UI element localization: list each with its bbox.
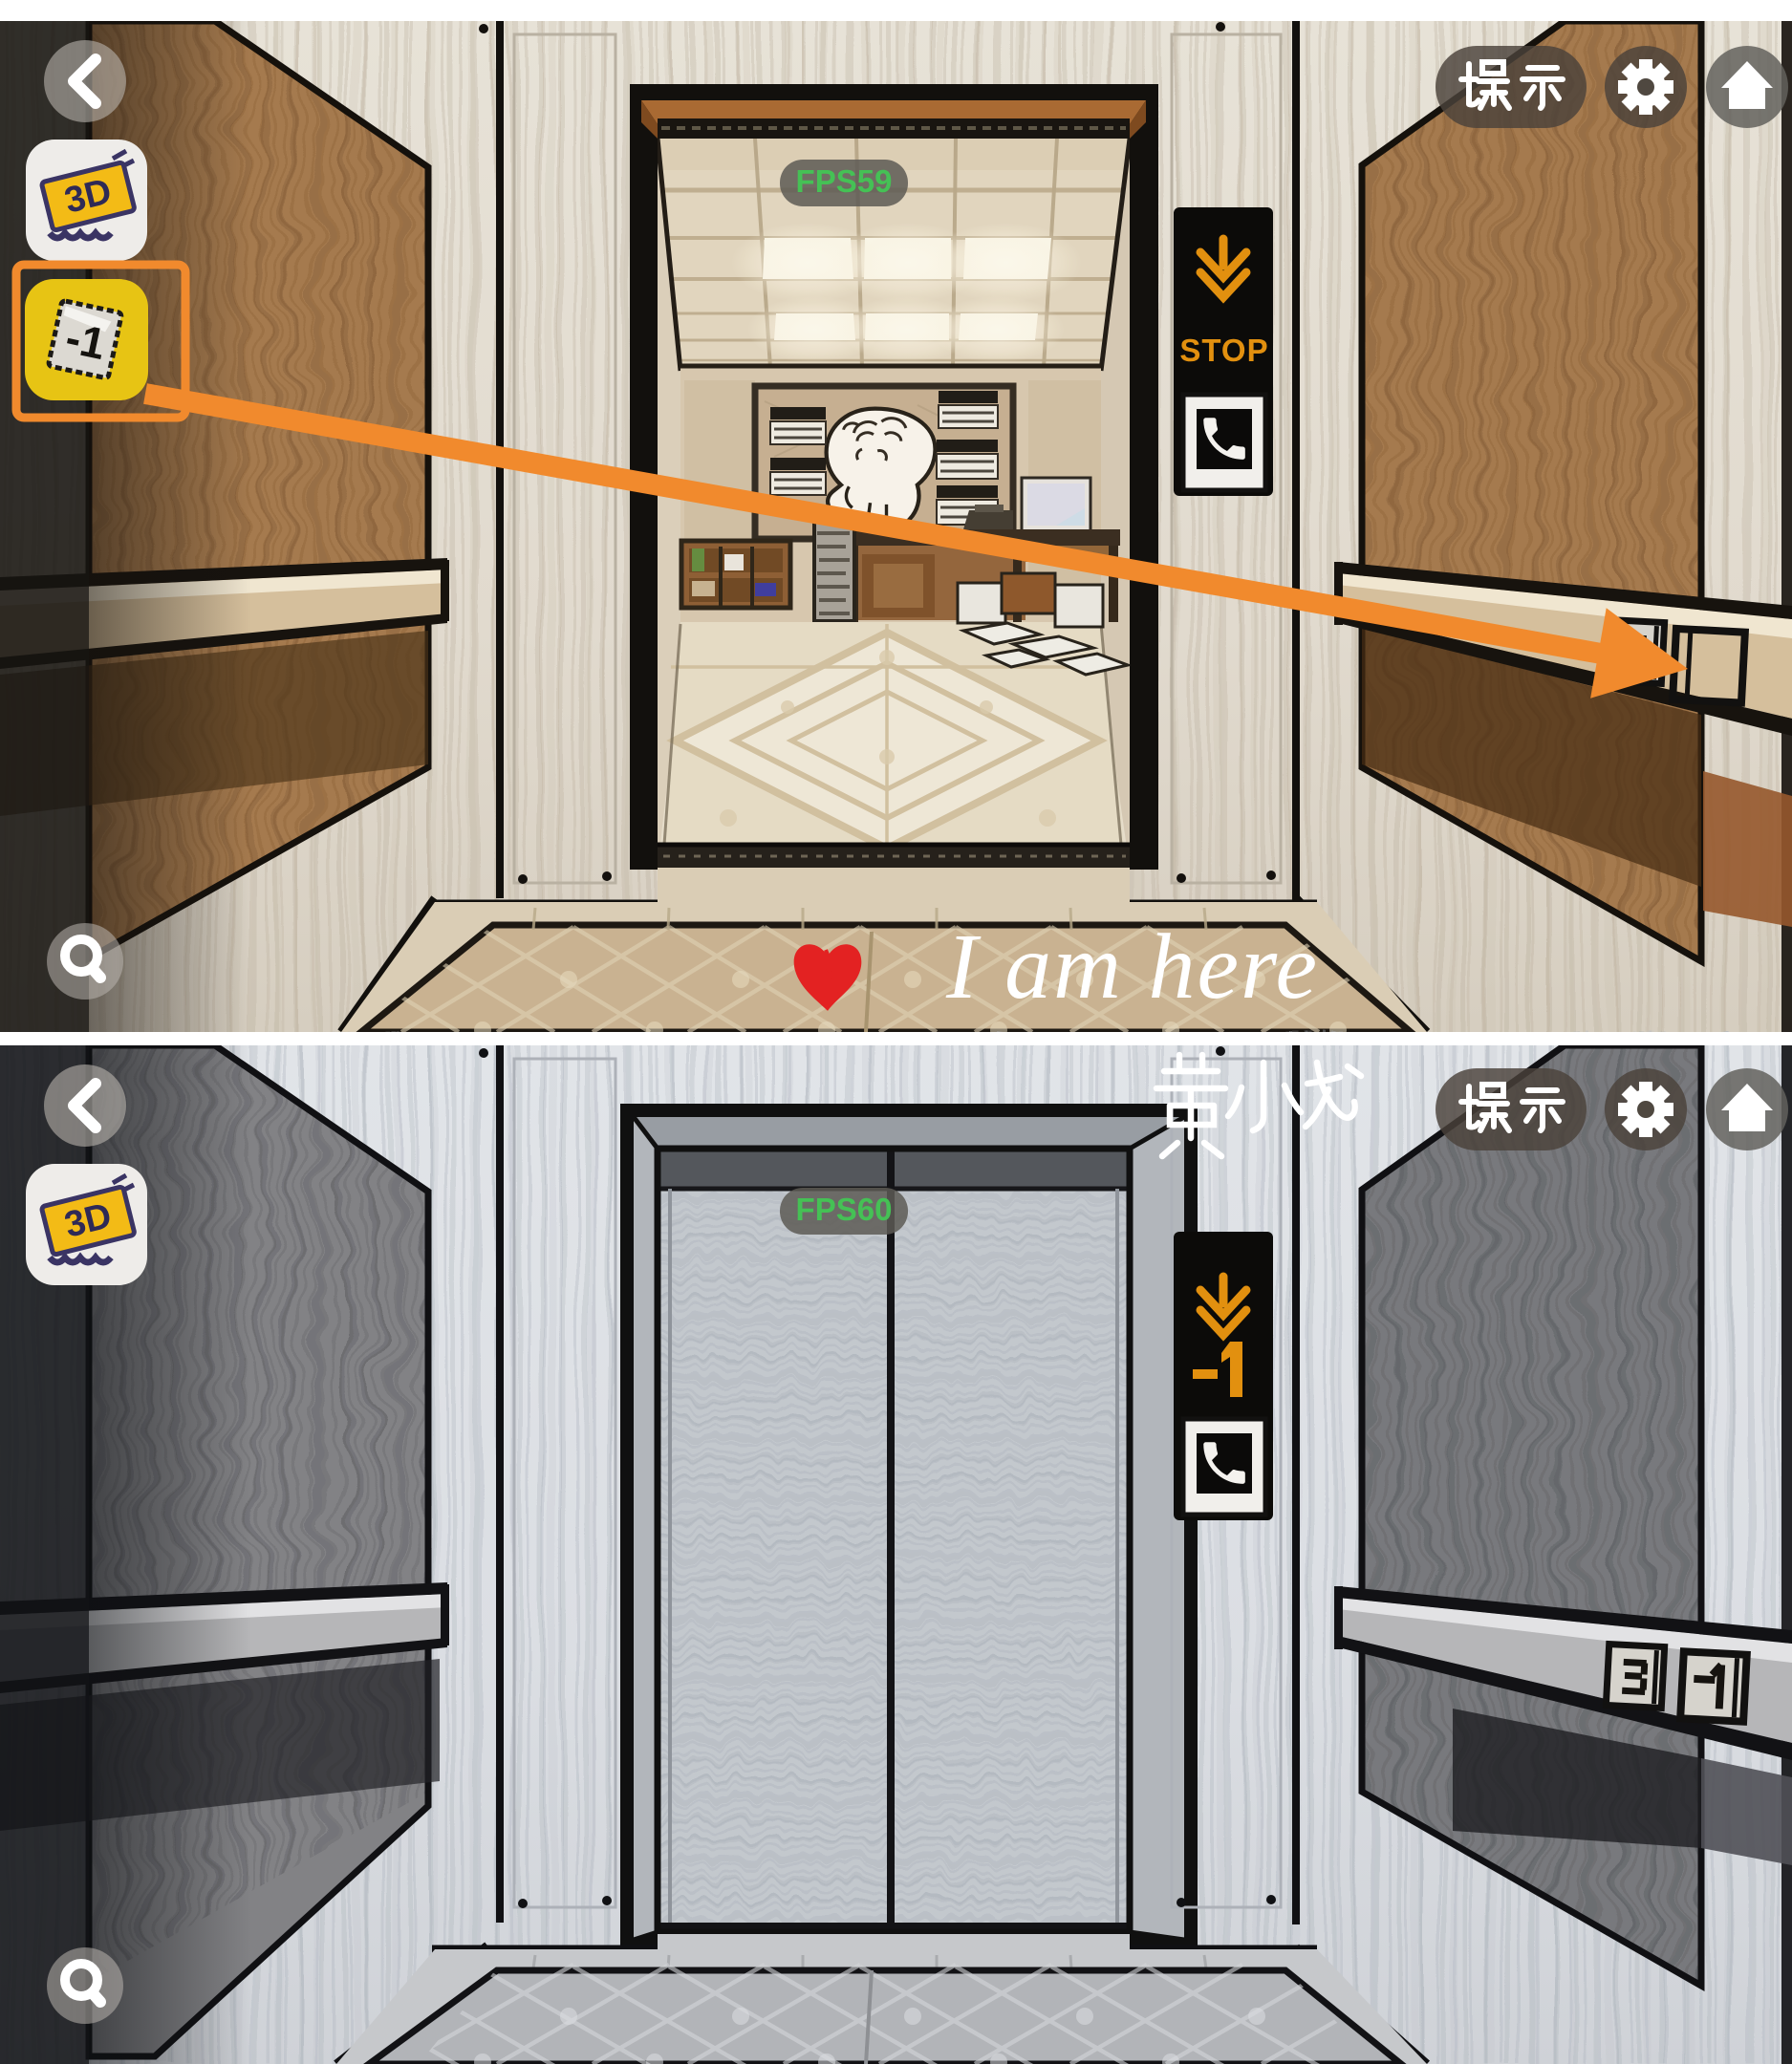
svg-text:FPS59: FPS59 [796,163,893,199]
svg-text:STOP: STOP [1179,333,1268,368]
svg-text:FPS60: FPS60 [796,1192,893,1227]
svg-text:I am here: I am here [945,915,1319,1019]
